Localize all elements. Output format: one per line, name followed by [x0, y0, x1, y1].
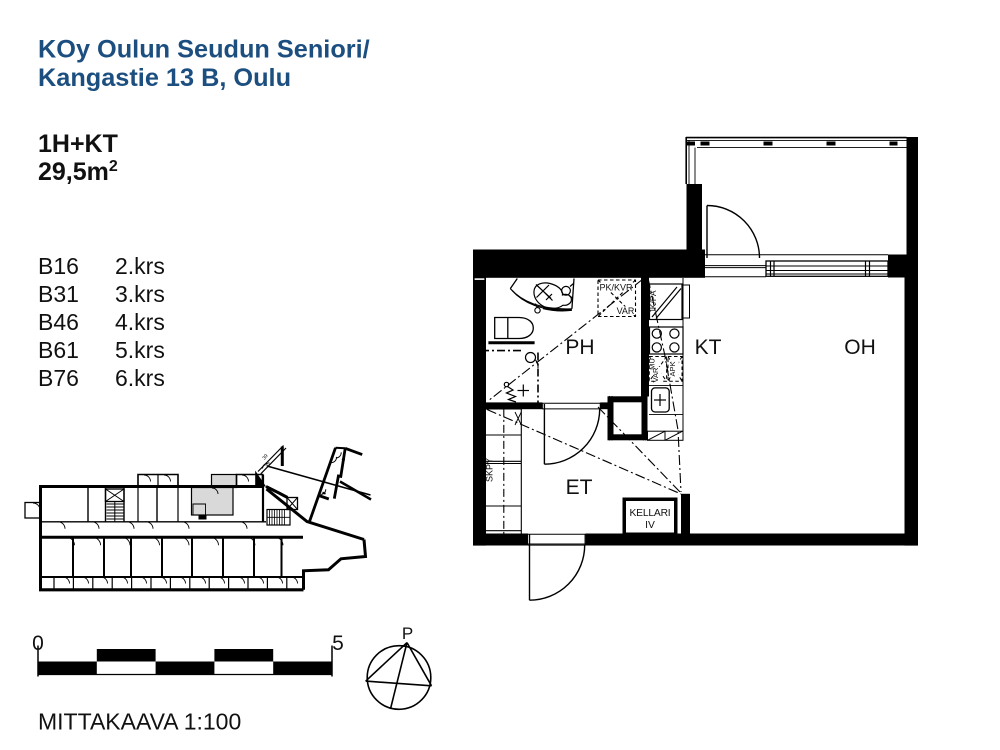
svg-text:B61: B61 [38, 337, 79, 363]
svg-text:6.krs: 6.krs [115, 365, 165, 391]
svg-text:2.krs: 2.krs [115, 253, 165, 279]
svg-text:29,5m2: 29,5m2 [38, 158, 118, 186]
svg-text:0: 0 [32, 632, 44, 655]
svg-text:3.krs: 3.krs [115, 281, 165, 307]
svg-text:5: 5 [332, 632, 344, 655]
svg-text:KOy Oulun Seudun Seniori/: KOy Oulun Seudun Seniori/ [38, 36, 370, 64]
svg-text:APK: APK [668, 361, 677, 376]
svg-text:5.krs: 5.krs [115, 337, 165, 363]
svg-text:KELLARI: KELLARI [630, 508, 671, 519]
svg-text:B31: B31 [38, 281, 79, 307]
svg-text:B76: B76 [38, 365, 79, 391]
svg-text:P: P [402, 624, 413, 643]
svg-text:B46: B46 [38, 309, 79, 335]
svg-text:ET: ET [566, 476, 593, 499]
svg-text:Kangastie 13 B, Oulu: Kangastie 13 B, Oulu [38, 64, 291, 92]
svg-text:B16: B16 [38, 253, 79, 279]
svg-text:KT: KT [695, 336, 722, 359]
svg-text:PH: PH [565, 336, 594, 359]
svg-text:VAR: VAR [617, 306, 635, 316]
svg-text:VAR: VAR [651, 367, 660, 382]
svg-text:IV: IV [645, 520, 655, 531]
svg-text:4.krs: 4.krs [115, 309, 165, 335]
svg-text:SKPY: SKPY [485, 458, 495, 482]
svg-text:OH: OH [844, 336, 876, 359]
svg-text:1H+KT: 1H+KT [38, 130, 118, 158]
svg-text:MITTAKAAVA 1:100: MITTAKAAVA 1:100 [38, 709, 241, 735]
